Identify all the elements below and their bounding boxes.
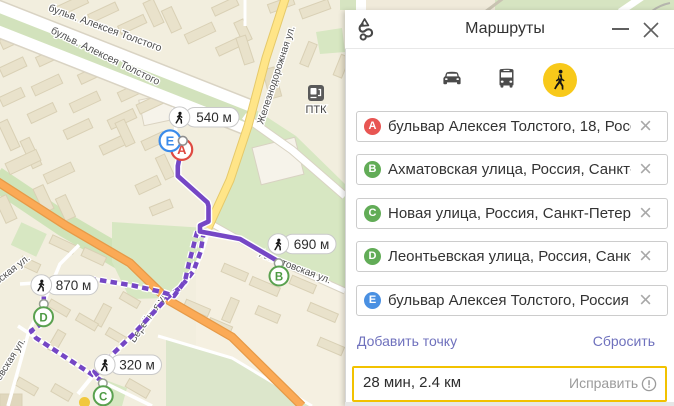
- svg-text:540 м: 540 м: [196, 110, 232, 125]
- svg-text:320 м: 320 м: [119, 358, 155, 373]
- svg-text:Е: Е: [166, 134, 175, 149]
- svg-text:D: D: [39, 312, 47, 324]
- svg-text:690 м: 690 м: [294, 237, 330, 252]
- svg-text:В: В: [275, 272, 283, 284]
- svg-text:ПТК: ПТК: [305, 104, 327, 116]
- svg-text:С: С: [99, 391, 107, 403]
- svg-text:870 м: 870 м: [56, 278, 92, 293]
